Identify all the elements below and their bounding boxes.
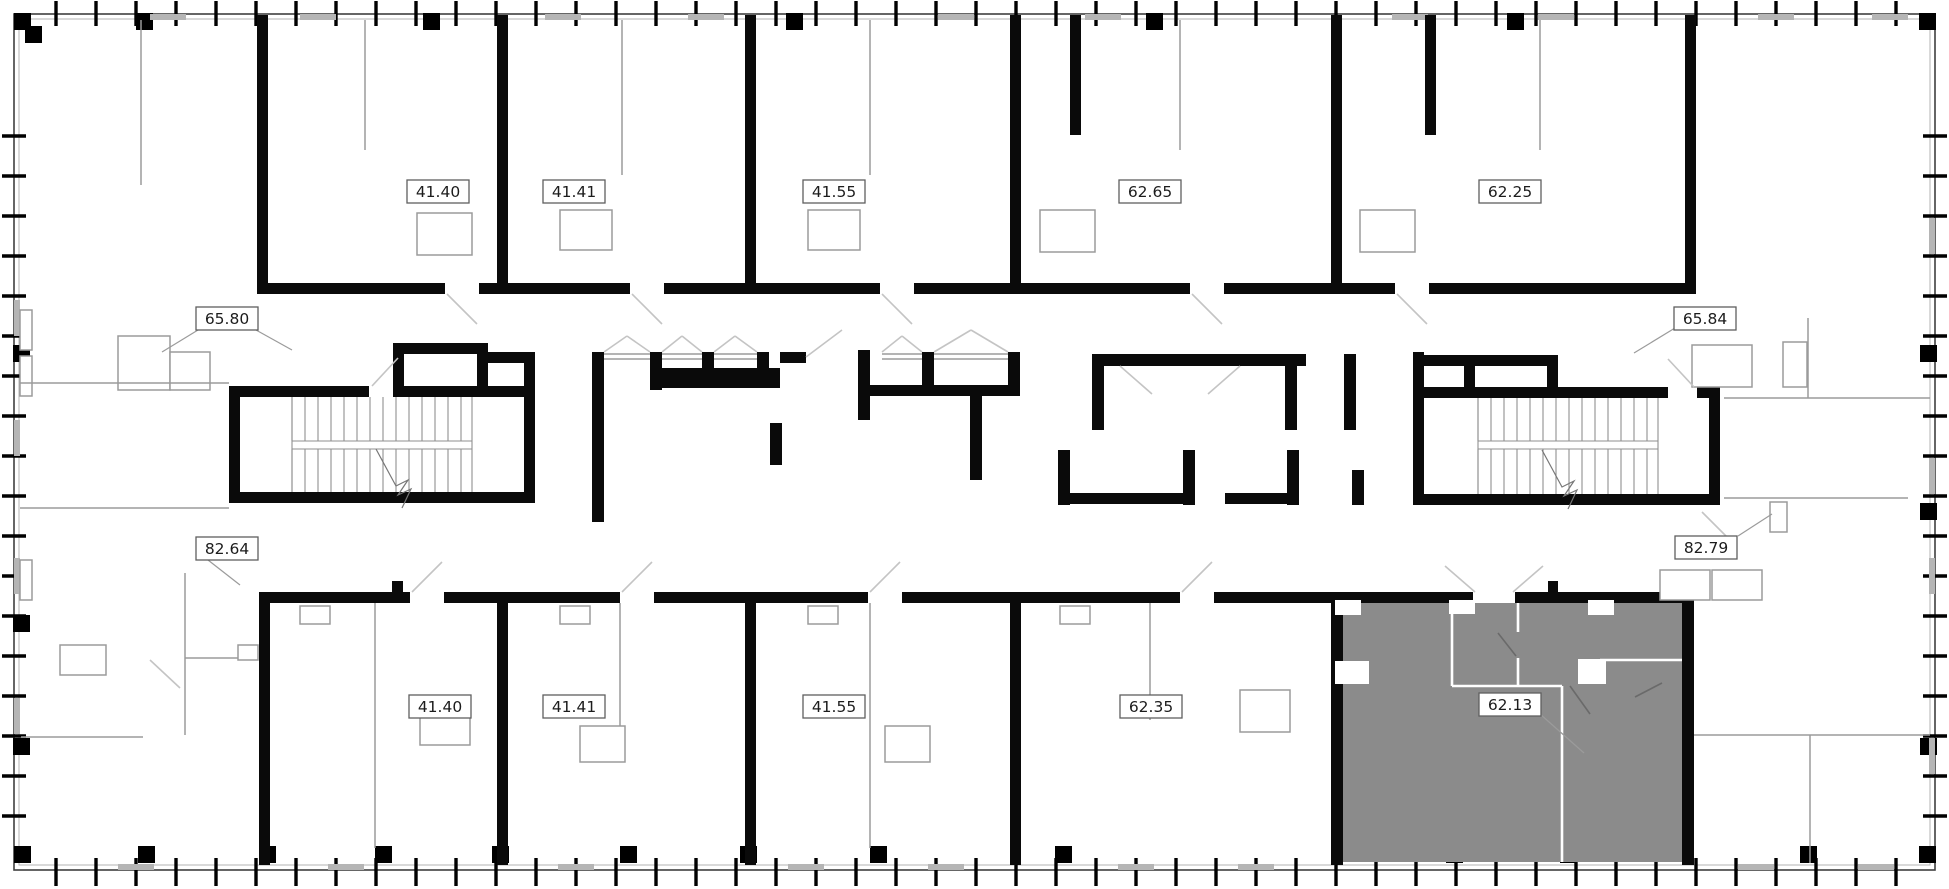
svg-text:62.13: 62.13 bbox=[1488, 696, 1532, 714]
unit-area-label-top-4[interactable]: 62.65 bbox=[1119, 180, 1181, 203]
svg-text:62.65: 62.65 bbox=[1128, 183, 1172, 201]
unit-area-label-bottom-4[interactable]: 62.35 bbox=[1120, 695, 1182, 718]
unit-area-label-upper-right[interactable]: 65.84 bbox=[1674, 307, 1736, 330]
unit-area-label-top-2[interactable]: 41.41 bbox=[543, 180, 605, 203]
unit-area-label-bottom-1[interactable]: 41.40 bbox=[409, 695, 471, 718]
svg-text:62.25: 62.25 bbox=[1488, 183, 1532, 201]
svg-text:82.79: 82.79 bbox=[1684, 539, 1728, 557]
svg-text:65.80: 65.80 bbox=[205, 310, 249, 328]
unit-area-label-top-3[interactable]: 41.55 bbox=[803, 180, 865, 203]
unit-area-label-lower-left[interactable]: 82.64 bbox=[196, 537, 258, 560]
svg-text:41.41: 41.41 bbox=[552, 698, 596, 716]
svg-text:41.55: 41.55 bbox=[812, 183, 856, 201]
unit-area-label-bottom-3[interactable]: 41.55 bbox=[803, 695, 865, 718]
selected-unit[interactable] bbox=[1335, 600, 1682, 862]
svg-text:41.41: 41.41 bbox=[552, 183, 596, 201]
stair-treads-left bbox=[292, 397, 472, 492]
svg-text:41.55: 41.55 bbox=[812, 698, 856, 716]
svg-text:82.64: 82.64 bbox=[205, 540, 249, 558]
svg-text:41.40: 41.40 bbox=[416, 183, 460, 201]
unit-area-label-top-1[interactable]: 41.40 bbox=[407, 180, 469, 203]
unit-area-label-top-5[interactable]: 62.25 bbox=[1479, 180, 1541, 203]
svg-text:41.40: 41.40 bbox=[418, 698, 462, 716]
unit-area-label-upper-left[interactable]: 65.80 bbox=[196, 307, 258, 330]
svg-text:62.35: 62.35 bbox=[1129, 698, 1173, 716]
unit-area-label-lower-right[interactable]: 82.79 bbox=[1675, 536, 1737, 559]
stair-core-left bbox=[229, 343, 535, 508]
floor-plan: 41.40 41.41 41.55 62.65 62.25 65.80 65.8… bbox=[0, 0, 1949, 889]
stair-core-right bbox=[1413, 352, 1720, 509]
unit-area-label-bottom-5-selected[interactable]: 62.13 bbox=[1479, 693, 1541, 716]
elevator-core bbox=[592, 330, 1364, 522]
unit-area-label-bottom-2[interactable]: 41.41 bbox=[543, 695, 605, 718]
stair-treads-right bbox=[1478, 398, 1658, 494]
svg-text:65.84: 65.84 bbox=[1683, 310, 1727, 328]
